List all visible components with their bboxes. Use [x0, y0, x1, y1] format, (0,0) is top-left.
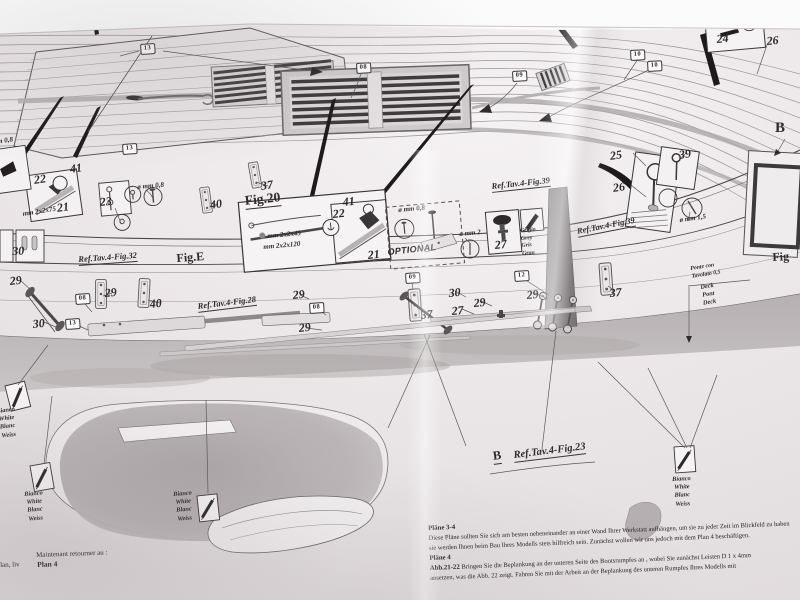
- plan-label: 10: [630, 49, 645, 60]
- plan-label: Ref.Tav.4-Fig.28: [197, 294, 257, 313]
- plan-label: Bianco White Blanc Weiss: [24, 489, 45, 523]
- plan-label: ø mm 0,8: [137, 181, 164, 191]
- plan-label: Bianco White Blanc Weiss: [672, 475, 692, 509]
- plan-label: ø mm 2: [459, 228, 481, 238]
- plan-label: 08: [309, 302, 324, 313]
- plan-label: Plan 4: [37, 559, 58, 569]
- plan-label: Bianco White Blanc Weiss: [173, 489, 194, 523]
- plan-label: 27: [451, 303, 464, 319]
- plan-label: 08: [75, 293, 90, 304]
- plan-label: 22: [332, 206, 346, 222]
- plan-label: 09: [512, 70, 527, 81]
- plan-label: 08: [356, 62, 371, 73]
- plan-label: 40: [149, 296, 163, 312]
- plan-label: Ref.Tav.4-Fig.32: [78, 250, 137, 266]
- plan-label: mm 2x2x45: [267, 229, 301, 240]
- plan-label: mm 2x2x120: [263, 240, 301, 251]
- plan-label: Ponte con Tavolato 0,5: [690, 261, 721, 280]
- plan-label: mm 2x2x75: [22, 205, 56, 218]
- plan-label: 27: [494, 237, 508, 253]
- abb-21-22-label: Abb.21-22: [430, 564, 460, 572]
- plan-label: Deck Pont Deck: [700, 282, 717, 308]
- plan-label: 30: [32, 316, 46, 332]
- plan-label: OPTIONAL: [387, 242, 437, 257]
- plan-label: 21: [367, 247, 381, 263]
- plan-label: 13: [65, 318, 80, 329]
- plan-label: 39: [678, 146, 692, 163]
- plan-label: 37: [420, 307, 433, 323]
- plan-label: 30: [12, 244, 25, 259]
- plan-label: 29: [9, 273, 23, 289]
- plan-label: B: [492, 448, 502, 465]
- plan-label: 29: [104, 285, 118, 301]
- plan-label: 26: [612, 179, 626, 196]
- plan-label: ø mm 0,8: [0, 135, 13, 147]
- plan-label: 12: [514, 270, 529, 281]
- plan-label: Bianco White Blanc Weiss: [0, 406, 18, 441]
- plan-label: Ref.Tav.4-Fig.39: [491, 175, 551, 193]
- plan-label: 37: [609, 285, 622, 301]
- plan-label: Fig: [772, 249, 789, 265]
- plan-label: 29: [292, 287, 306, 303]
- plan-label: 26: [766, 33, 779, 49]
- plan-label: 22: [33, 171, 47, 188]
- plan-label: Fig.E: [176, 249, 205, 266]
- plan-label: 30: [448, 285, 461, 301]
- plan-label: 24: [716, 31, 729, 47]
- plan-sheet-photo: 1308091010130813080912374022412123304122…: [0, 0, 800, 600]
- plan-label: 40: [209, 196, 223, 213]
- plan-label: ø mm 1,5: [679, 212, 706, 224]
- plan-label: 10: [647, 60, 662, 71]
- plan-label: 25: [609, 147, 623, 164]
- plan-label: B: [775, 120, 785, 137]
- plan-label: lan, liv: [0, 560, 20, 569]
- plan-label: 13: [122, 143, 137, 154]
- plan-label: 13: [140, 43, 155, 54]
- plan-label: 41: [69, 160, 83, 177]
- plan-label: 29: [526, 287, 539, 303]
- plan-label: 21: [56, 199, 70, 216]
- plan-label: Fig.20: [244, 189, 281, 210]
- plan-label: Grigio Grey Gris Grau: [520, 227, 538, 258]
- plan-label: Maintenant retourner au :: [36, 549, 108, 559]
- plan-label: Ref.Tav.4-Fig.23: [513, 441, 586, 462]
- plan-label: 23: [99, 194, 113, 210]
- labels-layer: 1308091010130813080912374022412123304122…: [0, 0, 800, 600]
- plan-label: 29: [473, 295, 486, 311]
- plan-label: 29: [298, 320, 312, 336]
- plan-label: ø mm 0,8: [398, 204, 425, 214]
- plan-label: 09: [405, 272, 420, 283]
- plan-label: Ref.Tav.4-Fig.39: [576, 215, 636, 237]
